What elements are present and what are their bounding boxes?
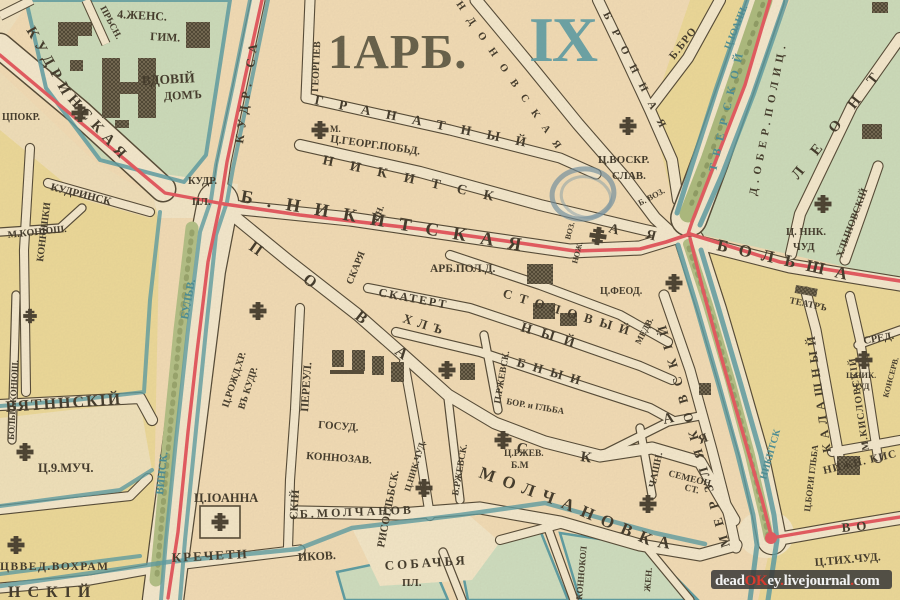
svg-text:deadOKey.livejournal.com: deadOKey.livejournal.com [715,573,880,589]
